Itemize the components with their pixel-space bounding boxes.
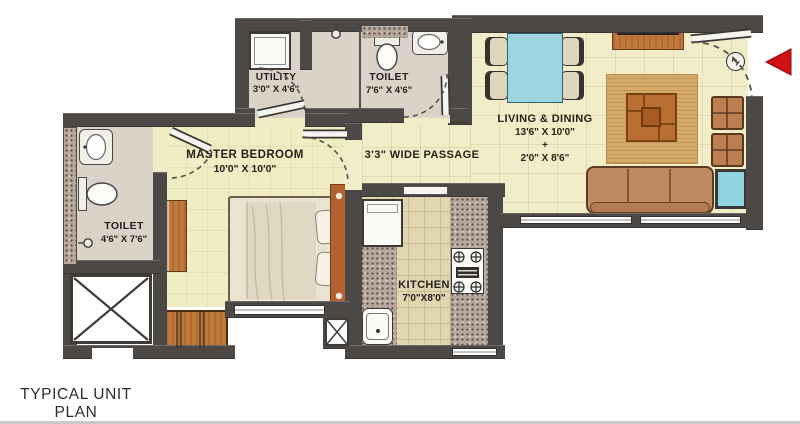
kitchen-window: [452, 348, 497, 356]
side-table: [715, 169, 747, 209]
washbasin: [412, 30, 448, 55]
bed-blanket: [246, 202, 316, 299]
pouf: [711, 96, 744, 130]
sofa-backrest: [590, 202, 710, 213]
dresser: [164, 310, 228, 350]
wc-tank: [78, 177, 87, 211]
entry-arrow-icon: [766, 49, 791, 75]
stove: [451, 248, 484, 294]
toilet-top-door-opening: [404, 108, 450, 118]
living-window: [640, 216, 741, 224]
utility-door-opening: [255, 108, 305, 118]
dining-chair: [561, 71, 584, 100]
wall-leftblock-top: [63, 113, 348, 127]
kitchen-label: KITCHEN 7'0"X8'0": [398, 278, 450, 305]
bedroom-window: [234, 305, 325, 315]
wall-utility-toilet-divider: [300, 20, 312, 70]
kitchen-sink-basin: [366, 313, 389, 340]
utility-label: UTILITY 3'0" X 4'6": [253, 71, 299, 96]
dining-table: [507, 33, 563, 103]
toilet-top-label: TOILET 7'6" X 4'6": [366, 71, 412, 97]
washing-machine-lid: [254, 37, 286, 65]
refrigerator-detail: [367, 204, 398, 213]
washbasin: [79, 129, 113, 165]
passage-label: 3'3" WIDE PASSAGE: [365, 148, 480, 162]
duct-strip: [64, 128, 76, 264]
wall-living-right: [746, 96, 763, 230]
master-bedroom-label: MASTER BEDROOM 10'0" X 10'0": [186, 148, 303, 177]
dining-chair: [485, 37, 508, 66]
dining-chair: [561, 37, 584, 66]
coffee-table-center: [641, 107, 661, 127]
wall-top-living: [452, 15, 763, 33]
pouf: [711, 133, 744, 167]
wc-tank: [374, 37, 400, 46]
toilet-ledge: [362, 26, 408, 38]
dining-chair: [485, 71, 508, 100]
kitchen-door-threshold: [403, 186, 448, 195]
wall-leftblock-bottom: [63, 345, 235, 359]
utility-door-opening: [255, 118, 305, 127]
living-window: [520, 216, 632, 224]
toilet-top-door-opening: [404, 118, 450, 123]
shaft-recess: [92, 348, 133, 359]
shaft: [70, 274, 152, 344]
plan-title-line1: TYPICAL UNIT PLAN: [0, 386, 152, 422]
toilet-left-label: TOILET 4'6" X 7'6": [101, 220, 147, 246]
wall-top-utility-block: [235, 18, 452, 32]
toilet-left-door-opening: [153, 127, 167, 172]
wall-shaft-top: [63, 260, 160, 274]
wardrobe: [165, 200, 187, 272]
floor-plan: UTILITY 3'0" X 4'6" TOILET 7'6" X 4'6" L…: [0, 0, 800, 424]
duct-shaft: [325, 318, 349, 346]
plan-title: TYPICAL UNIT PLAN 1 BHK: [0, 386, 152, 424]
living-dining-label: LIVING & DINING 13'6" X 10'0" + 2'0" X 8…: [497, 112, 592, 165]
bedroom-door-opening: [345, 140, 362, 190]
wall-utility-left: [235, 18, 249, 120]
wall-kitchen-right: [488, 183, 503, 359]
